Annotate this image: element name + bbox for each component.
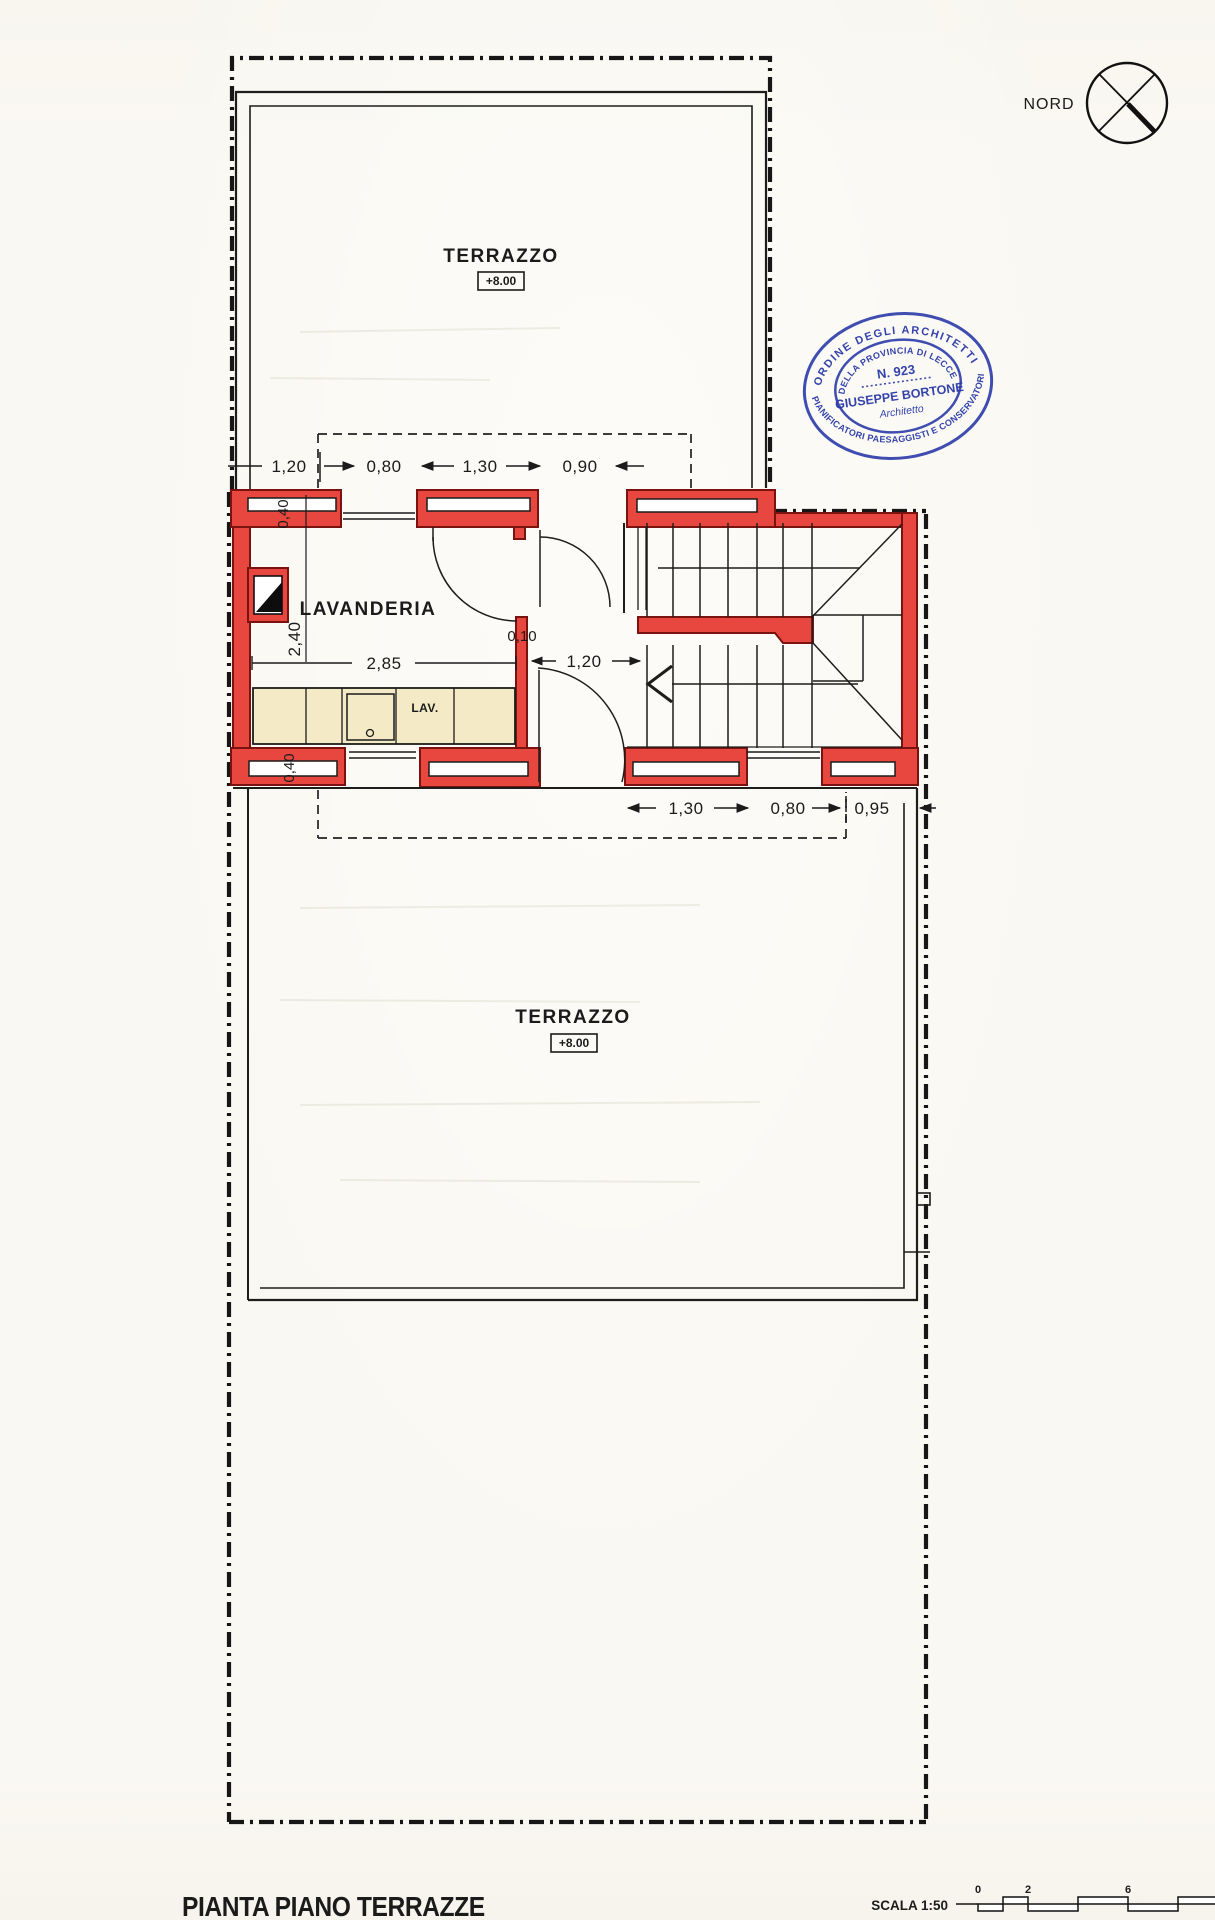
stamp-reg-number: N. 923 [876, 362, 916, 382]
dim-inner-120: 1,20 [566, 652, 601, 671]
laundry-counter: LAV. [253, 688, 515, 744]
scale-tick-0: 0 [975, 1884, 981, 1896]
wall-left [233, 490, 250, 785]
door-swing-laundry [433, 537, 517, 621]
stair-treads-upper-flight [647, 523, 783, 617]
staircase [624, 523, 902, 748]
elevation-value-lower: +8.00 [559, 1036, 590, 1050]
dim-bottom-2: 0,80 [770, 799, 805, 818]
scale-label: SCALA 1:50 [871, 1898, 948, 1913]
window-slot [637, 499, 757, 512]
boundary-dashed-outline [229, 58, 926, 1822]
dim-left-1: 0,40 [275, 499, 292, 528]
wall-jog-detail [917, 1193, 930, 1205]
wall-top-strip [775, 513, 913, 527]
counter-top [253, 688, 515, 744]
dim-left-2: 2,40 [285, 621, 304, 656]
upper-terrace-walls [236, 92, 766, 490]
scanned-plan-page: TERRAZZO +8.00 [0, 0, 1215, 1920]
drawing-title: PIANTA PIANO TERRAZZE [182, 1891, 485, 1920]
door-swing-vestibule-bottom [538, 668, 625, 782]
lower-terrace-labels: TERRAZZO +8.00 [515, 1007, 630, 1052]
room-label-terrazzo-lower: TERRAZZO [515, 1007, 630, 1028]
stair-landing-wall [638, 617, 813, 643]
room-label-lavanderia: LAVANDERIA [300, 599, 437, 620]
elevation-value-upper: +8.00 [486, 274, 517, 288]
wall-jamb-notch [514, 527, 525, 539]
dim-inner-285: 2,85 [366, 654, 401, 673]
dimensions-bottom: 1,30 0,80 0,95 [628, 796, 936, 822]
upper-terrace-labels: TERRAZZO +8.00 [443, 246, 558, 290]
dim-inner-010: 0,10 [507, 628, 536, 645]
door-swing-vestibule-top [540, 537, 610, 607]
title-block: PIANTA PIANO TERRAZZE SCALA 1:50 0 2 6 [182, 1884, 1215, 1920]
window-slot [248, 498, 336, 511]
dimensions-inner: 2,85 0,10 1,20 [252, 628, 640, 673]
stair-direction-arrow [648, 666, 672, 702]
window-slot [831, 762, 895, 776]
north-compass: NORD [1023, 63, 1167, 143]
floor-plan-drawing: TERRAZZO +8.00 [0, 0, 1215, 1920]
dim-left-3: 0,40 [281, 753, 298, 782]
washing-machine-label: LAV. [411, 701, 438, 715]
dimensions-top: 1,20 0,80 1,30 0,90 [228, 452, 644, 482]
dim-bottom-1: 1,30 [668, 799, 703, 818]
window-slot [633, 762, 739, 776]
stair-winders [812, 524, 902, 740]
stamp-architect-role: Architetto [878, 403, 925, 421]
scale-tick-2: 2 [1025, 1884, 1031, 1896]
architect-stamp: ORDINE DEGLI ARCHITETTI PIANIFICATORI PA… [795, 302, 1001, 471]
stair-treads-lower-flight [647, 645, 783, 748]
window-slot [429, 762, 528, 776]
dim-top-2: 0,80 [366, 457, 401, 476]
graphic-scale-bar [956, 1897, 1215, 1911]
window-slot [427, 498, 530, 511]
compass-needle-icon [1128, 104, 1154, 131]
dim-top-1: 1,20 [271, 457, 306, 476]
north-label: NORD [1023, 96, 1074, 113]
dim-top-3: 1,30 [462, 457, 497, 476]
dim-top-4: 0,90 [562, 457, 597, 476]
wall-right-stair [902, 513, 917, 783]
room-label-terrazzo-upper: TERRAZZO [443, 246, 558, 267]
dim-bottom-3: 0,95 [854, 799, 889, 818]
scale-tick-6: 6 [1125, 1884, 1131, 1896]
